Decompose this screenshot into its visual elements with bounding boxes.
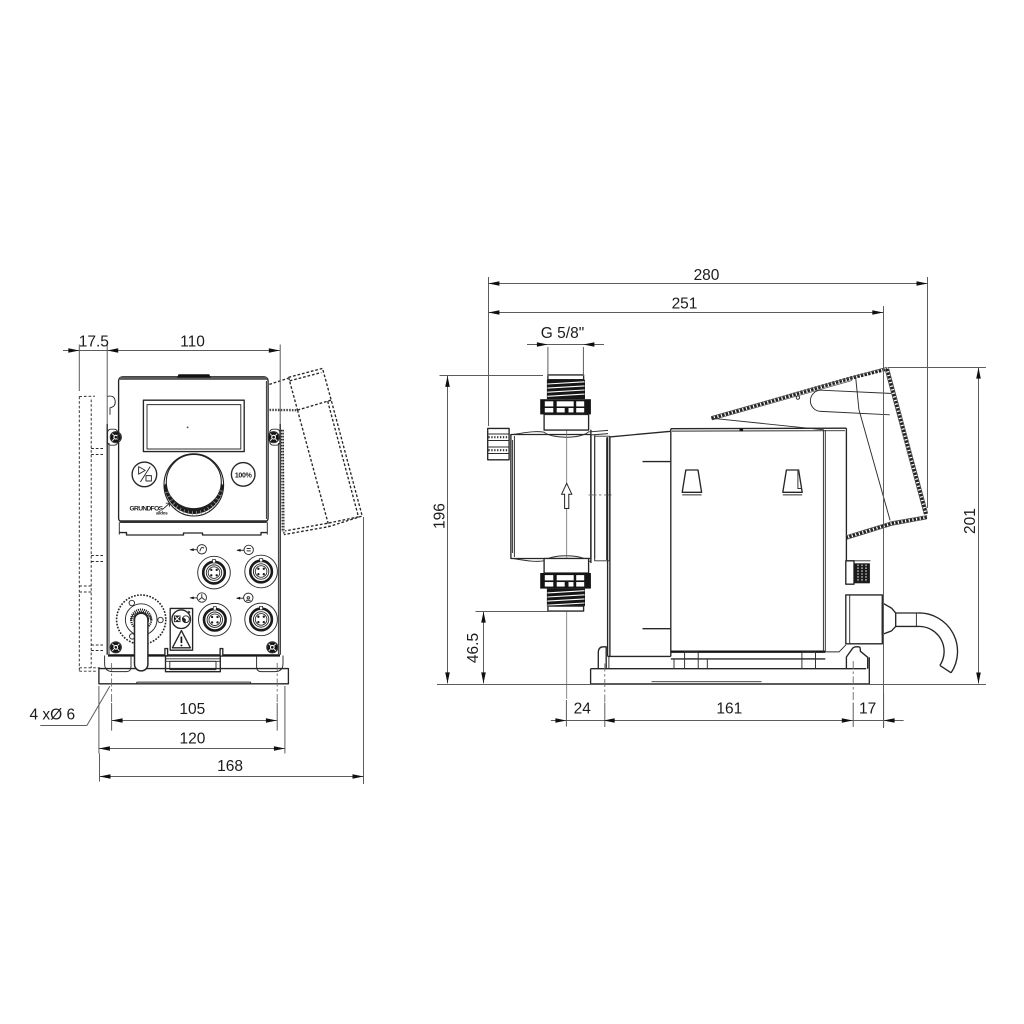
svg-text:4 xØ 6: 4 xØ 6 xyxy=(30,707,76,724)
svg-text:110: 110 xyxy=(180,333,205,350)
svg-text:196: 196 xyxy=(432,503,449,529)
svg-text:251: 251 xyxy=(672,296,698,313)
svg-text:100%: 100% xyxy=(235,472,253,479)
svg-text:46.5: 46.5 xyxy=(465,633,482,663)
svg-text:105: 105 xyxy=(179,701,205,718)
svg-text:17.5: 17.5 xyxy=(79,333,109,350)
svg-text:161: 161 xyxy=(716,701,742,718)
svg-text:alldos: alldos xyxy=(156,511,168,516)
svg-text:201: 201 xyxy=(962,508,979,534)
svg-text:G 5/8": G 5/8" xyxy=(541,325,584,342)
svg-text:120: 120 xyxy=(179,730,205,747)
svg-text:24: 24 xyxy=(574,701,592,718)
svg-text:280: 280 xyxy=(694,267,720,284)
svg-text:17: 17 xyxy=(859,701,876,718)
svg-text:168: 168 xyxy=(217,758,243,775)
